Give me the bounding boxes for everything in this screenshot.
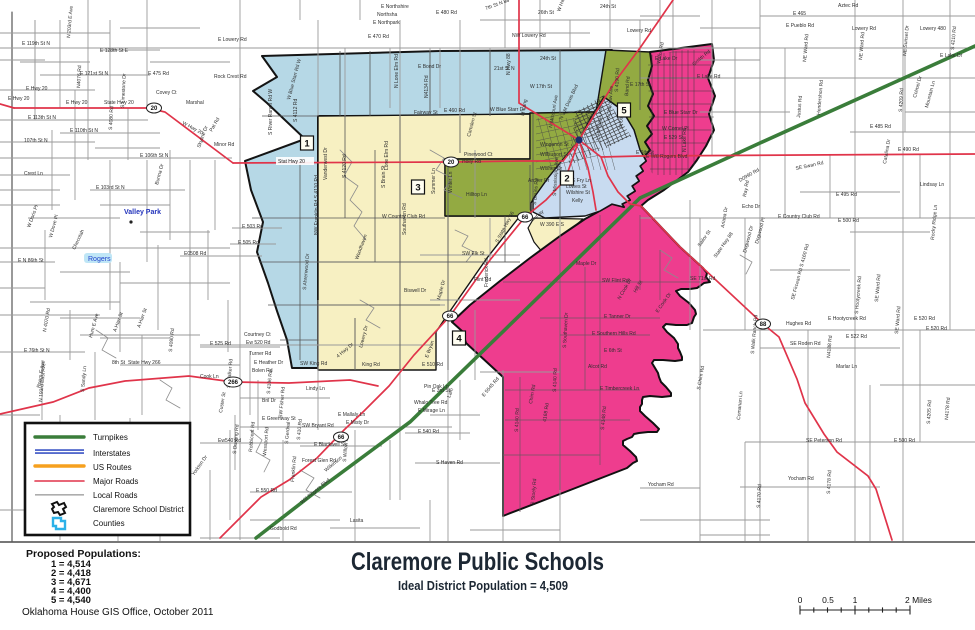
svg-text:S 4120 Rd: S 4120 Rd [342, 154, 348, 178]
svg-text:S 4178 Rd: S 4178 Rd [826, 470, 833, 494]
svg-text:4: 4 [456, 333, 462, 344]
svg-text:Pinewood Ct: Pinewood Ct [464, 152, 493, 158]
svg-text:E 470 Rd: E 470 Rd [368, 34, 389, 40]
svg-text:E 500 Rd: E 500 Rd [894, 438, 915, 444]
svg-text:Summer Ln: Summer Ln [431, 168, 437, 194]
svg-text:Minor Rd: Minor Rd [214, 142, 235, 148]
svg-text:E Timbercreek Ln: E Timbercreek Ln [600, 386, 639, 392]
svg-text:E Heather Dr: E Heather Dr [254, 360, 284, 366]
svg-text:E 76th St N: E 76th St N [24, 348, 50, 354]
svg-text:E Hootycreek Rd: E Hootycreek Rd [828, 316, 866, 322]
svg-text:E Fry Ln: E Fry Ln [572, 178, 591, 184]
svg-text:Stat Hwy 20: Stat Hwy 20 [278, 159, 305, 165]
svg-text:Wilshire St: Wilshire St [566, 190, 591, 196]
svg-text:E Lake Rd: E Lake Rd [697, 74, 721, 80]
svg-text:SE Peterson Rd: SE Peterson Rd [806, 438, 842, 444]
svg-text:E Will Rogers Blvd: E Will Rogers Blvd [646, 154, 688, 160]
svg-text:Lowery Rd: Lowery Rd [852, 26, 876, 32]
svg-text:88: 88 [760, 322, 767, 328]
svg-text:Yocham Rd: Yocham Rd [648, 482, 674, 488]
svg-text:State Hwy 266: State Hwy 266 [128, 360, 161, 366]
svg-text:E Lake Dr: E Lake Dr [940, 53, 963, 59]
svg-text:S Haven Rd: S Haven Rd [436, 460, 463, 466]
svg-text:Winganon St: Winganon St [540, 142, 569, 148]
svg-text:Ew 520 Rd: Ew 520 Rd [246, 340, 271, 346]
svg-text:26th St: 26th St [538, 10, 554, 16]
svg-text:E Hwy 20: E Hwy 20 [26, 86, 48, 92]
svg-text:SE Roden Rd: SE Roden Rd [790, 341, 821, 347]
svg-text:E Mirage Ln: E Mirage Ln [418, 408, 445, 414]
svg-text:Ideal District Population = 4,: Ideal District Population = 4,509 [398, 579, 568, 593]
svg-text:66: 66 [447, 314, 454, 320]
svg-text:E 460 Rd: E 460 Rd [444, 108, 465, 114]
svg-text:E 465: E 465 [793, 11, 806, 17]
svg-text:8th St: 8th St [112, 360, 126, 366]
svg-text:Southaven Rd: Southaven Rd [402, 203, 408, 235]
svg-text:N4134 Rd: N4134 Rd [424, 75, 430, 98]
svg-text:SW King Rd: SW King Rd [300, 361, 327, 367]
svg-text:Rock Crest Rd: Rock Crest Rd [214, 74, 247, 80]
svg-text:E Northshire: E Northshire [381, 4, 409, 10]
svg-text:3: 3 [415, 182, 420, 193]
svg-text:W 390 E S: W 390 E S [540, 222, 565, 228]
svg-text:Interstates: Interstates [93, 449, 130, 458]
svg-text:E 106th St N: E 106th St N [140, 153, 169, 159]
svg-text:State Hwy 20: State Hwy 20 [104, 100, 134, 106]
svg-text:107th St N: 107th St N [24, 138, 48, 144]
svg-text:E0508 Rd: E0508 Rd [184, 251, 206, 257]
svg-text:E 490 Rd: E 490 Rd [898, 147, 919, 153]
svg-text:E Country Club Rd: E Country Club Rd [778, 214, 820, 220]
svg-text:E 119th St N: E 119th St N [22, 41, 50, 47]
svg-text:Valley Park: Valley Park [124, 209, 161, 216]
svg-text:Lowery Rd: Lowery Rd [627, 28, 651, 34]
svg-text:Local Roads: Local Roads [93, 491, 137, 500]
svg-text:E 495 Rd: E 495 Rd [836, 192, 857, 198]
svg-text:Bril Dr: Bril Dr [262, 398, 276, 404]
svg-text:E 121st St N: E 121st St N [80, 71, 108, 77]
svg-text:S Brain St: S Brain St [381, 165, 387, 188]
svg-text:US Routes: US Routes [93, 463, 132, 472]
svg-text:E Blackwell St: E Blackwell St [314, 442, 346, 448]
svg-text:Holly Rd: Holly Rd [462, 159, 481, 165]
svg-text:E 485 Rd: E 485 Rd [870, 124, 891, 130]
svg-text:Lasita: Lasita [350, 518, 364, 524]
svg-text:Crest Ln: Crest Ln [24, 171, 43, 177]
svg-text:SE 71st Rd: SE 71st Rd [690, 276, 716, 282]
svg-text:S 4170 Rd: S 4170 Rd [756, 484, 763, 508]
svg-text:E 500 Rd: E 500 Rd [838, 218, 859, 224]
svg-text:Hilltop Ln: Hilltop Ln [466, 192, 487, 198]
svg-text:E 17th St: E 17th St [630, 82, 651, 88]
svg-text:Rogers: Rogers [88, 256, 111, 263]
svg-text:Yocham Rd: Yocham Rd [788, 476, 814, 482]
svg-text:24th St: 24th St [540, 56, 556, 62]
svg-text:2: 2 [564, 173, 569, 184]
svg-text:N Lone Elm Rd: N Lone Elm Rd [394, 54, 400, 88]
svg-text:E 113th St N: E 113th St N [28, 115, 56, 121]
svg-text:E Tanner Dr: E Tanner Dr [604, 314, 631, 320]
svg-text:266: 266 [228, 380, 239, 386]
svg-text:E 103rd St N: E 103rd St N [96, 185, 125, 191]
svg-text:1: 1 [304, 138, 310, 149]
svg-text:S 4140 Rd: S 4140 Rd [514, 408, 521, 432]
svg-text:Biswell Dr: Biswell Dr [404, 288, 427, 294]
svg-text:E Hwy 20: E Hwy 20 [66, 100, 88, 106]
svg-text:Frederick Rd: Frederick Rd [484, 258, 490, 287]
svg-text:Lindy Ln: Lindy Ln [306, 386, 325, 392]
svg-text:NW Lowery Rd: NW Lowery Rd [512, 33, 546, 39]
svg-text:66: 66 [338, 435, 345, 441]
svg-text:N Lake Rd: N Lake Rd [682, 128, 688, 152]
svg-text:Alcot Rd: Alcot Rd [588, 364, 607, 370]
svg-text:E Northpark: E Northpark [373, 20, 400, 26]
svg-text:Lindsay Ln: Lindsay Ln [920, 182, 944, 188]
svg-text:E 475 Rd: E 475 Rd [148, 71, 169, 77]
svg-text:E 503 Rd: E 503 Rd [242, 224, 263, 230]
svg-text:66: 66 [522, 215, 529, 221]
svg-text:NW Franklin Rd S 4110 Rd: NW Franklin Rd S 4110 Rd [314, 175, 320, 235]
svg-text:20: 20 [151, 106, 158, 112]
svg-text:Oklahoma House GIS Office, Oct: Oklahoma House GIS Office, October 2011 [22, 607, 214, 618]
svg-text:Claremore School District: Claremore School District [93, 505, 184, 514]
svg-text:0.5: 0.5 [822, 595, 834, 605]
svg-text:Aztec Rd: Aztec Rd [838, 3, 859, 9]
svg-text:E Hwy 20: E Hwy 20 [8, 96, 30, 102]
svg-text:S 4080 Rd: S 4080 Rd [108, 106, 115, 130]
svg-text:E 525 Rd: E 525 Rd [210, 341, 231, 347]
svg-text:5 = 4,540: 5 = 4,540 [51, 595, 91, 606]
svg-text:S 4190 Rd: S 4190 Rd [614, 68, 621, 92]
svg-text:N4076 Rd: N4076 Rd [76, 65, 83, 88]
svg-text:E 128th St E: E 128th St E [100, 48, 129, 54]
svg-text:E Pueblo Rd: E Pueblo Rd [786, 23, 814, 29]
svg-text:Hughes Rd: Hughes Rd [786, 321, 811, 327]
svg-text:Claremore Public Schools: Claremore Public Schools [351, 548, 604, 576]
svg-text:Turner Rd: Turner Rd [249, 351, 272, 357]
svg-text:S 4205 Rd: S 4205 Rd [926, 400, 933, 424]
svg-text:Turnpikes: Turnpikes [93, 433, 128, 442]
svg-text:S 4140 Rd: S 4140 Rd [552, 368, 559, 392]
svg-text:Maple Dr: Maple Dr [576, 261, 597, 267]
svg-text:E 505 Rd: E 505 Rd [238, 240, 259, 246]
svg-text:E N 86th St: E N 86th St [18, 258, 44, 264]
svg-text:Lowery 480: Lowery 480 [920, 26, 946, 32]
svg-text:Northsha: Northsha [377, 12, 398, 18]
svg-text:S River Ranch Rd W: S River Ranch Rd W [268, 89, 274, 135]
svg-text:E 540 Rd: E 540 Rd [418, 429, 439, 435]
svg-text:Godbold Rd: Godbold Rd [270, 526, 297, 532]
svg-text:E 520 Rd: E 520 Rd [914, 316, 935, 322]
svg-text:Fairway St: Fairway St [414, 110, 438, 116]
svg-text:20: 20 [448, 160, 455, 166]
svg-text:5: 5 [621, 105, 627, 116]
svg-text:E 6th St: E 6th St [604, 348, 622, 354]
svg-text:Echo Dr: Echo Dr [742, 204, 760, 210]
svg-text:E 550 Rd: E 550 Rd [256, 488, 277, 494]
svg-text:E 522 Rd: E 522 Rd [846, 334, 867, 340]
svg-text:SW Bryant Rd: SW Bryant Rd [302, 423, 334, 429]
svg-text:E Lowery Rd: E Lowery Rd [218, 37, 247, 43]
svg-text:Courtney Ct: Courtney Ct [244, 332, 271, 338]
svg-text:Kelly: Kelly [572, 198, 583, 204]
svg-text:0: 0 [798, 595, 803, 605]
svg-text:E Southern Hills Rd: E Southern Hills Rd [592, 331, 636, 337]
svg-text:E Blue Starr Dr: E Blue Starr Dr [664, 110, 698, 116]
svg-text:1: 1 [853, 595, 858, 605]
svg-text:King Rd: King Rd [362, 362, 380, 368]
svg-text:Cook Ln: Cook Ln [200, 374, 219, 380]
svg-text:Whalo Tree Rd: Whalo Tree Rd [414, 400, 448, 406]
svg-text:E 110th St N: E 110th St N [70, 128, 98, 134]
svg-text:Covey Ct: Covey Ct [156, 90, 177, 96]
svg-text:Major Roads: Major Roads [93, 477, 138, 486]
svg-text:E Misty Dr: E Misty Dr [346, 420, 369, 426]
svg-text:2 Miles: 2 Miles [905, 595, 932, 605]
svg-text:24th St: 24th St [600, 4, 616, 10]
svg-text:S 4209 Rd: S 4209 Rd [898, 88, 905, 112]
svg-text:Marshal: Marshal [186, 100, 204, 106]
svg-text:E Mallaly Ln: E Mallaly Ln [338, 412, 365, 418]
svg-text:W 17th St: W 17th St [530, 84, 553, 90]
svg-text:E 480 Rd: E 480 Rd [436, 10, 457, 16]
svg-text:E 510 Rd: E 510 Rd [422, 362, 443, 368]
svg-text:E 529 St: E 529 St [664, 135, 684, 141]
svg-text:N Hwy 88: N Hwy 88 [506, 53, 512, 75]
svg-text:Vanderwest Dr: Vanderwest Dr [323, 147, 329, 180]
svg-text:S 4112 Rd: S 4112 Rd [293, 99, 299, 122]
svg-text:SW Elk St: SW Elk St [462, 251, 485, 257]
svg-text:E 520 Rd: E 520 Rd [926, 326, 947, 332]
svg-text:Marlar Ln: Marlar Ln [836, 364, 857, 370]
svg-text:Winter Ln: Winter Ln [448, 171, 454, 193]
svg-text:Counties: Counties [93, 519, 125, 528]
svg-text:Willsuport St: Willsuport St [540, 152, 569, 158]
svg-text:E Bond Dr: E Bond Dr [418, 64, 441, 70]
